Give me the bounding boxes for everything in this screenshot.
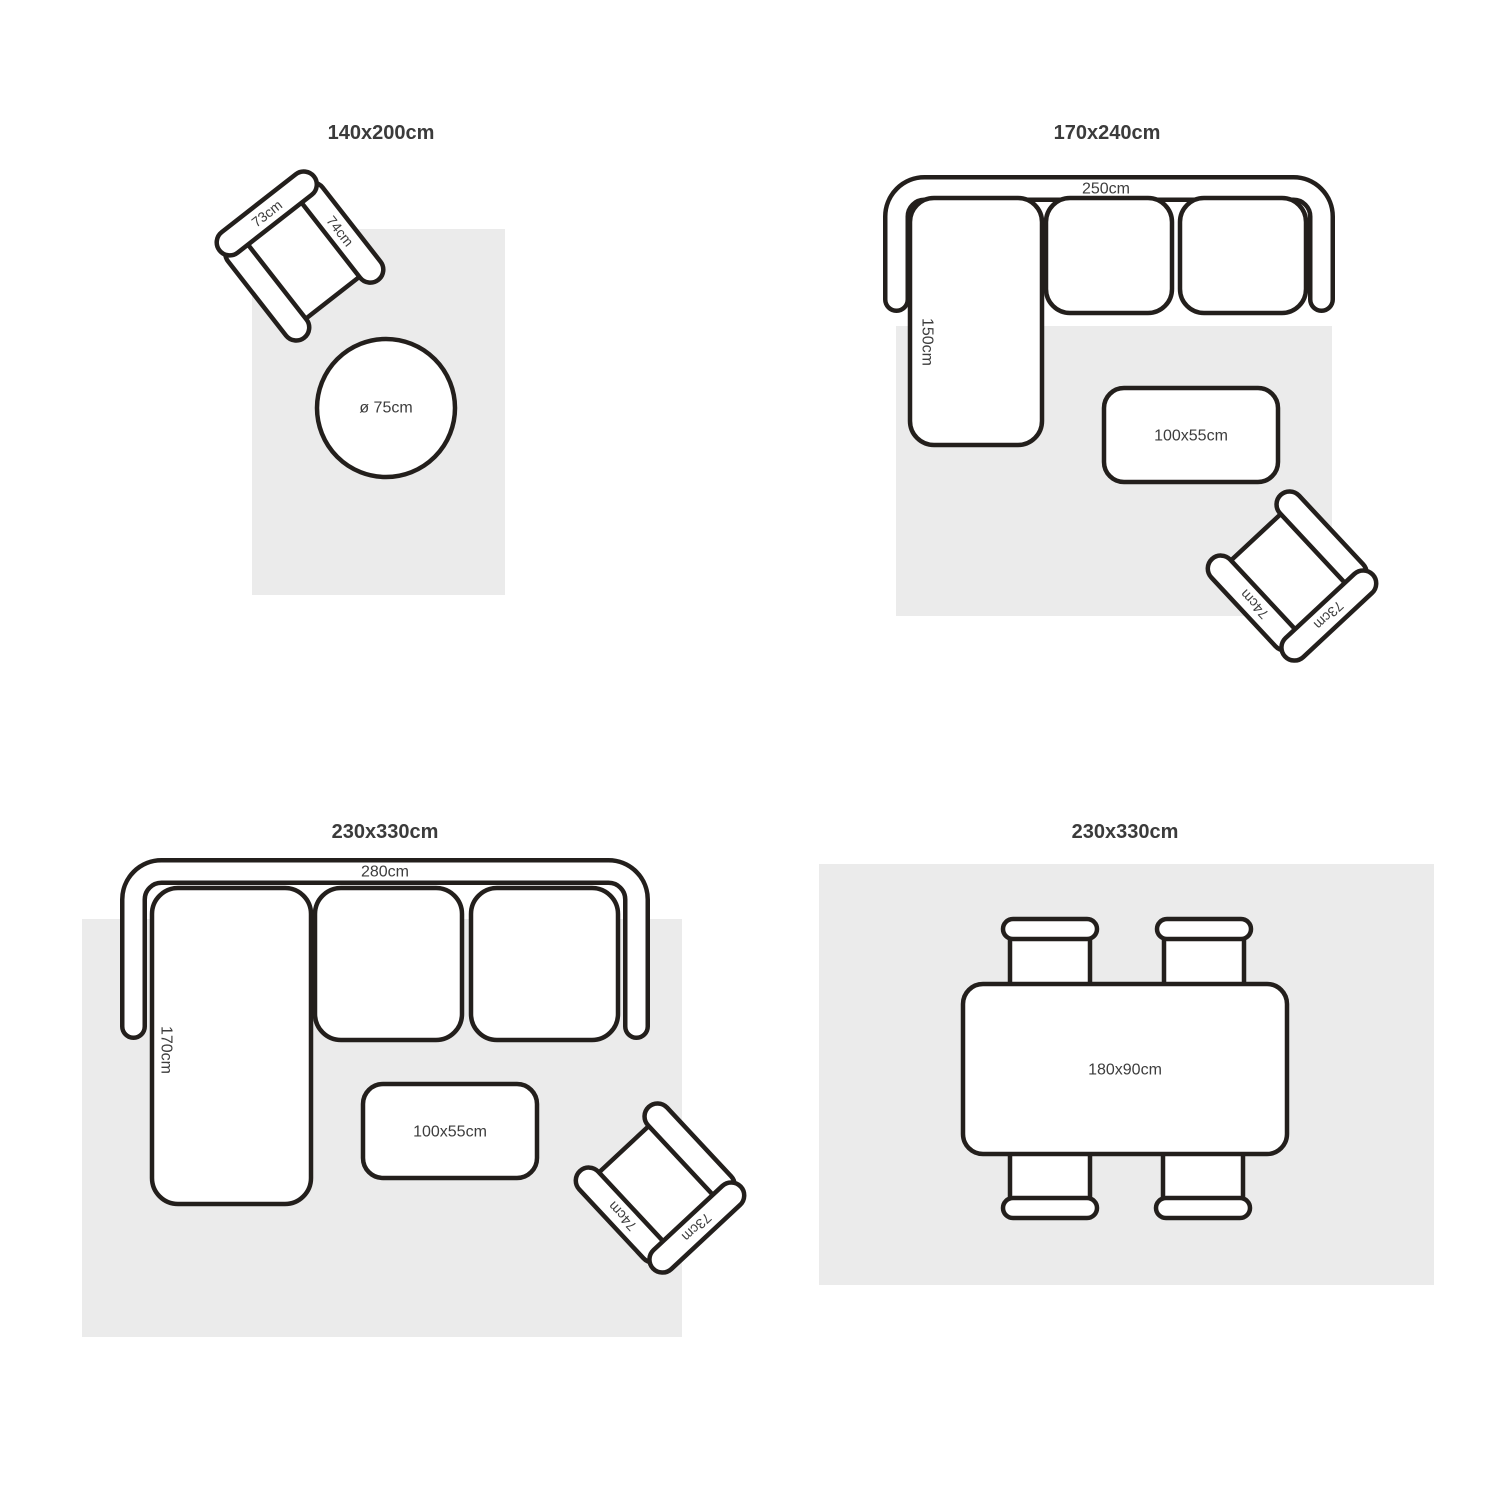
rug-size-guide: 140x200cm 73cm 74cm ø 75cm 170x240cm 250… bbox=[0, 0, 1500, 1500]
sofa-cushion bbox=[1046, 198, 1172, 313]
chair-backrest bbox=[1003, 919, 1097, 939]
size-guide-diagram: 140x200cm 73cm 74cm ø 75cm 170x240cm 250… bbox=[0, 0, 1500, 1500]
panel-230x330-dining: 230x330cm 180x90cm bbox=[819, 821, 1434, 1285]
chair-backrest bbox=[1156, 1198, 1250, 1218]
sofa-cushion bbox=[1180, 198, 1306, 313]
sofa-chaise-depth-label: 150cm bbox=[919, 318, 936, 366]
sofa-chaise-depth-label: 170cm bbox=[158, 1026, 175, 1074]
coffee-table-size-label: 100x55cm bbox=[1154, 428, 1228, 445]
sofa-cushion bbox=[471, 888, 618, 1040]
rug-size-title: 170x240cm bbox=[1054, 122, 1161, 144]
panel-170x240: 170x240cm 250cm 150cm 100x55cm 73cm 74cm bbox=[896, 122, 1382, 666]
panel-140x200: 140x200cm 73cm 74cm ø 75cm bbox=[211, 122, 505, 595]
rug-size-title: 230x330cm bbox=[332, 821, 439, 843]
rug-size-title: 230x330cm bbox=[1072, 821, 1179, 843]
panel-230x330-living: 230x330cm 280cm 170cm 100x55cm 73cm 74cm bbox=[82, 821, 750, 1337]
dining-table-size-label: 180x90cm bbox=[1088, 1062, 1162, 1079]
round-table-diameter-label: ø 75cm bbox=[359, 400, 412, 417]
chair-backrest bbox=[1157, 919, 1251, 939]
sofa-cushion bbox=[315, 888, 462, 1040]
sofa-width-label: 280cm bbox=[361, 864, 409, 881]
rug-size-title: 140x200cm bbox=[328, 122, 435, 144]
sofa-chaise bbox=[152, 888, 311, 1204]
chair-backrest bbox=[1003, 1198, 1097, 1218]
coffee-table-size-label: 100x55cm bbox=[413, 1124, 487, 1141]
sofa-width-label: 250cm bbox=[1082, 181, 1130, 198]
